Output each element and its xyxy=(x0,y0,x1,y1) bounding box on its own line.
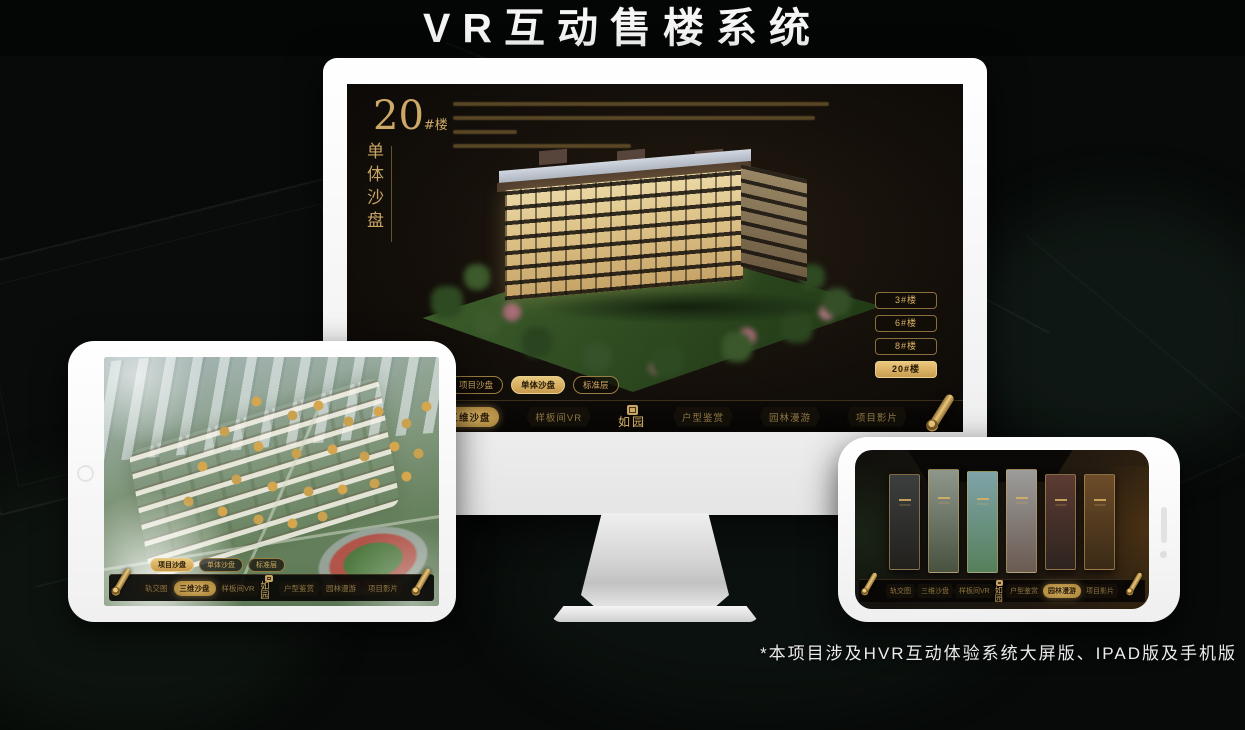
building-button-6[interactable]: 6#楼 xyxy=(875,315,937,332)
menu-item-garden-roam[interactable]: 园林漫游 xyxy=(1043,584,1081,598)
seal-icon xyxy=(996,580,1003,586)
logo-text: 如园 xyxy=(618,416,646,428)
building-button-20[interactable]: 20#楼 xyxy=(875,361,937,378)
tablet-mockup: 项目沙盘 单体沙盘 标准层 轨交图 三维沙盘 样板间VR 如园 户型鉴赏 园林漫… xyxy=(68,341,456,622)
menu-item-project-film[interactable]: 项目影片 xyxy=(1081,584,1119,598)
monitor-stand-base xyxy=(551,606,759,622)
tab-standard-floor[interactable]: 标准层 xyxy=(248,558,285,572)
menu-item-showroom-vr[interactable]: 样板间VR xyxy=(954,584,995,598)
menu-item-project-film[interactable]: 项目影片 xyxy=(362,581,404,596)
tab-single-sandtable[interactable]: 单体沙盘 xyxy=(199,558,243,572)
building-button-8[interactable]: 8#楼 xyxy=(875,338,937,355)
logo-text: 如园 xyxy=(995,587,1005,603)
heading-subtitle-vertical: 单体沙盘 xyxy=(361,142,386,234)
tablet-view-tabs: 项目沙盘 单体沙盘 标准层 xyxy=(150,558,285,572)
building-heading: 20#楼 xyxy=(373,96,448,136)
building-model xyxy=(505,152,811,312)
phone-navbar: 轨交图 三维沙盘 样板间VR 如园 户型鉴赏 园林漫游 项目影片 xyxy=(859,579,1145,602)
building-number: 20 xyxy=(373,93,424,139)
project-logo: 如园 xyxy=(260,575,278,601)
menu-item-3d-sandtable[interactable]: 三维沙盘 xyxy=(174,581,216,596)
gallery-panel[interactable] xyxy=(1006,469,1037,573)
tab-project-sandtable[interactable]: 项目沙盘 xyxy=(150,558,194,572)
building-button-3[interactable]: 3#楼 xyxy=(875,292,937,309)
menu-item-showroom-vr[interactable]: 样板间VR xyxy=(526,407,591,427)
seal-icon xyxy=(627,405,638,415)
tab-single-sandtable[interactable]: 单体沙盘 xyxy=(511,376,565,394)
page-title: VR互动售楼系统 xyxy=(0,0,1245,56)
seal-icon xyxy=(265,575,273,582)
project-logo: 如园 xyxy=(995,580,1005,603)
project-logo: 如园 xyxy=(618,405,646,428)
monitor-stand xyxy=(581,513,729,613)
menu-item-floorplan[interactable]: 户型鉴赏 xyxy=(1005,584,1043,598)
building-number-badges[interactable] xyxy=(104,357,109,362)
phone-earpiece xyxy=(1161,507,1167,543)
gallery-panel[interactable] xyxy=(967,471,998,573)
view-tabs: 项目沙盘 单体沙盘 标准层 xyxy=(449,376,619,394)
phone-mockup: 轨交图 三维沙盘 样板间VR 如园 户型鉴赏 园林漫游 项目影片 xyxy=(838,437,1180,622)
tab-standard-floor[interactable]: 标准层 xyxy=(573,376,619,394)
phone-app-screen: 轨交图 三维沙盘 样板间VR 如园 户型鉴赏 园林漫游 项目影片 xyxy=(855,450,1149,609)
building-selector-group: 3#楼 6#楼 8#楼 20#楼 xyxy=(875,292,937,378)
footnote-text: *本项目涉及HVR互动体验系统大屏版、IPAD版及手机版 xyxy=(760,639,1237,664)
phone-camera-icon xyxy=(1160,551,1167,558)
menu-item-showroom-vr[interactable]: 样板间VR xyxy=(216,581,261,596)
tablet-navbar: 轨交图 三维沙盘 样板间VR 如园 户型鉴赏 园林漫游 项目影片 xyxy=(109,574,434,601)
menu-item-transit-map[interactable]: 轨交图 xyxy=(139,581,174,596)
menu-item-transit-map[interactable]: 轨交图 xyxy=(885,584,916,598)
tablet-app-screen: 项目沙盘 单体沙盘 标准层 轨交图 三维沙盘 样板间VR 如园 户型鉴赏 园林漫… xyxy=(104,357,439,606)
menu-item-project-film[interactable]: 项目影片 xyxy=(847,407,907,427)
panorama-gallery xyxy=(889,474,1115,582)
menu-item-floorplan[interactable]: 户型鉴赏 xyxy=(278,581,320,596)
scroll-handle-icon[interactable] xyxy=(924,392,957,432)
gallery-panel[interactable] xyxy=(928,469,959,573)
building-3d-render[interactable] xyxy=(413,148,891,394)
menu-item-garden-roam[interactable]: 园林漫游 xyxy=(320,581,362,596)
menu-item-3d-sandtable[interactable]: 三维沙盘 xyxy=(916,584,954,598)
tab-project-sandtable[interactable]: 项目沙盘 xyxy=(449,376,503,394)
gallery-panel[interactable] xyxy=(1084,474,1115,570)
tablet-home-button[interactable] xyxy=(77,465,94,482)
heading-divider xyxy=(391,146,392,242)
menu-item-floorplan[interactable]: 户型鉴赏 xyxy=(673,407,733,427)
building-number-suffix: #楼 xyxy=(424,118,448,133)
trees-decoration xyxy=(413,148,421,156)
logo-text: 如园 xyxy=(260,583,278,601)
menu-item-garden-roam[interactable]: 园林漫游 xyxy=(760,407,820,427)
gallery-panel[interactable] xyxy=(1045,474,1076,570)
gallery-panel[interactable] xyxy=(889,474,920,570)
